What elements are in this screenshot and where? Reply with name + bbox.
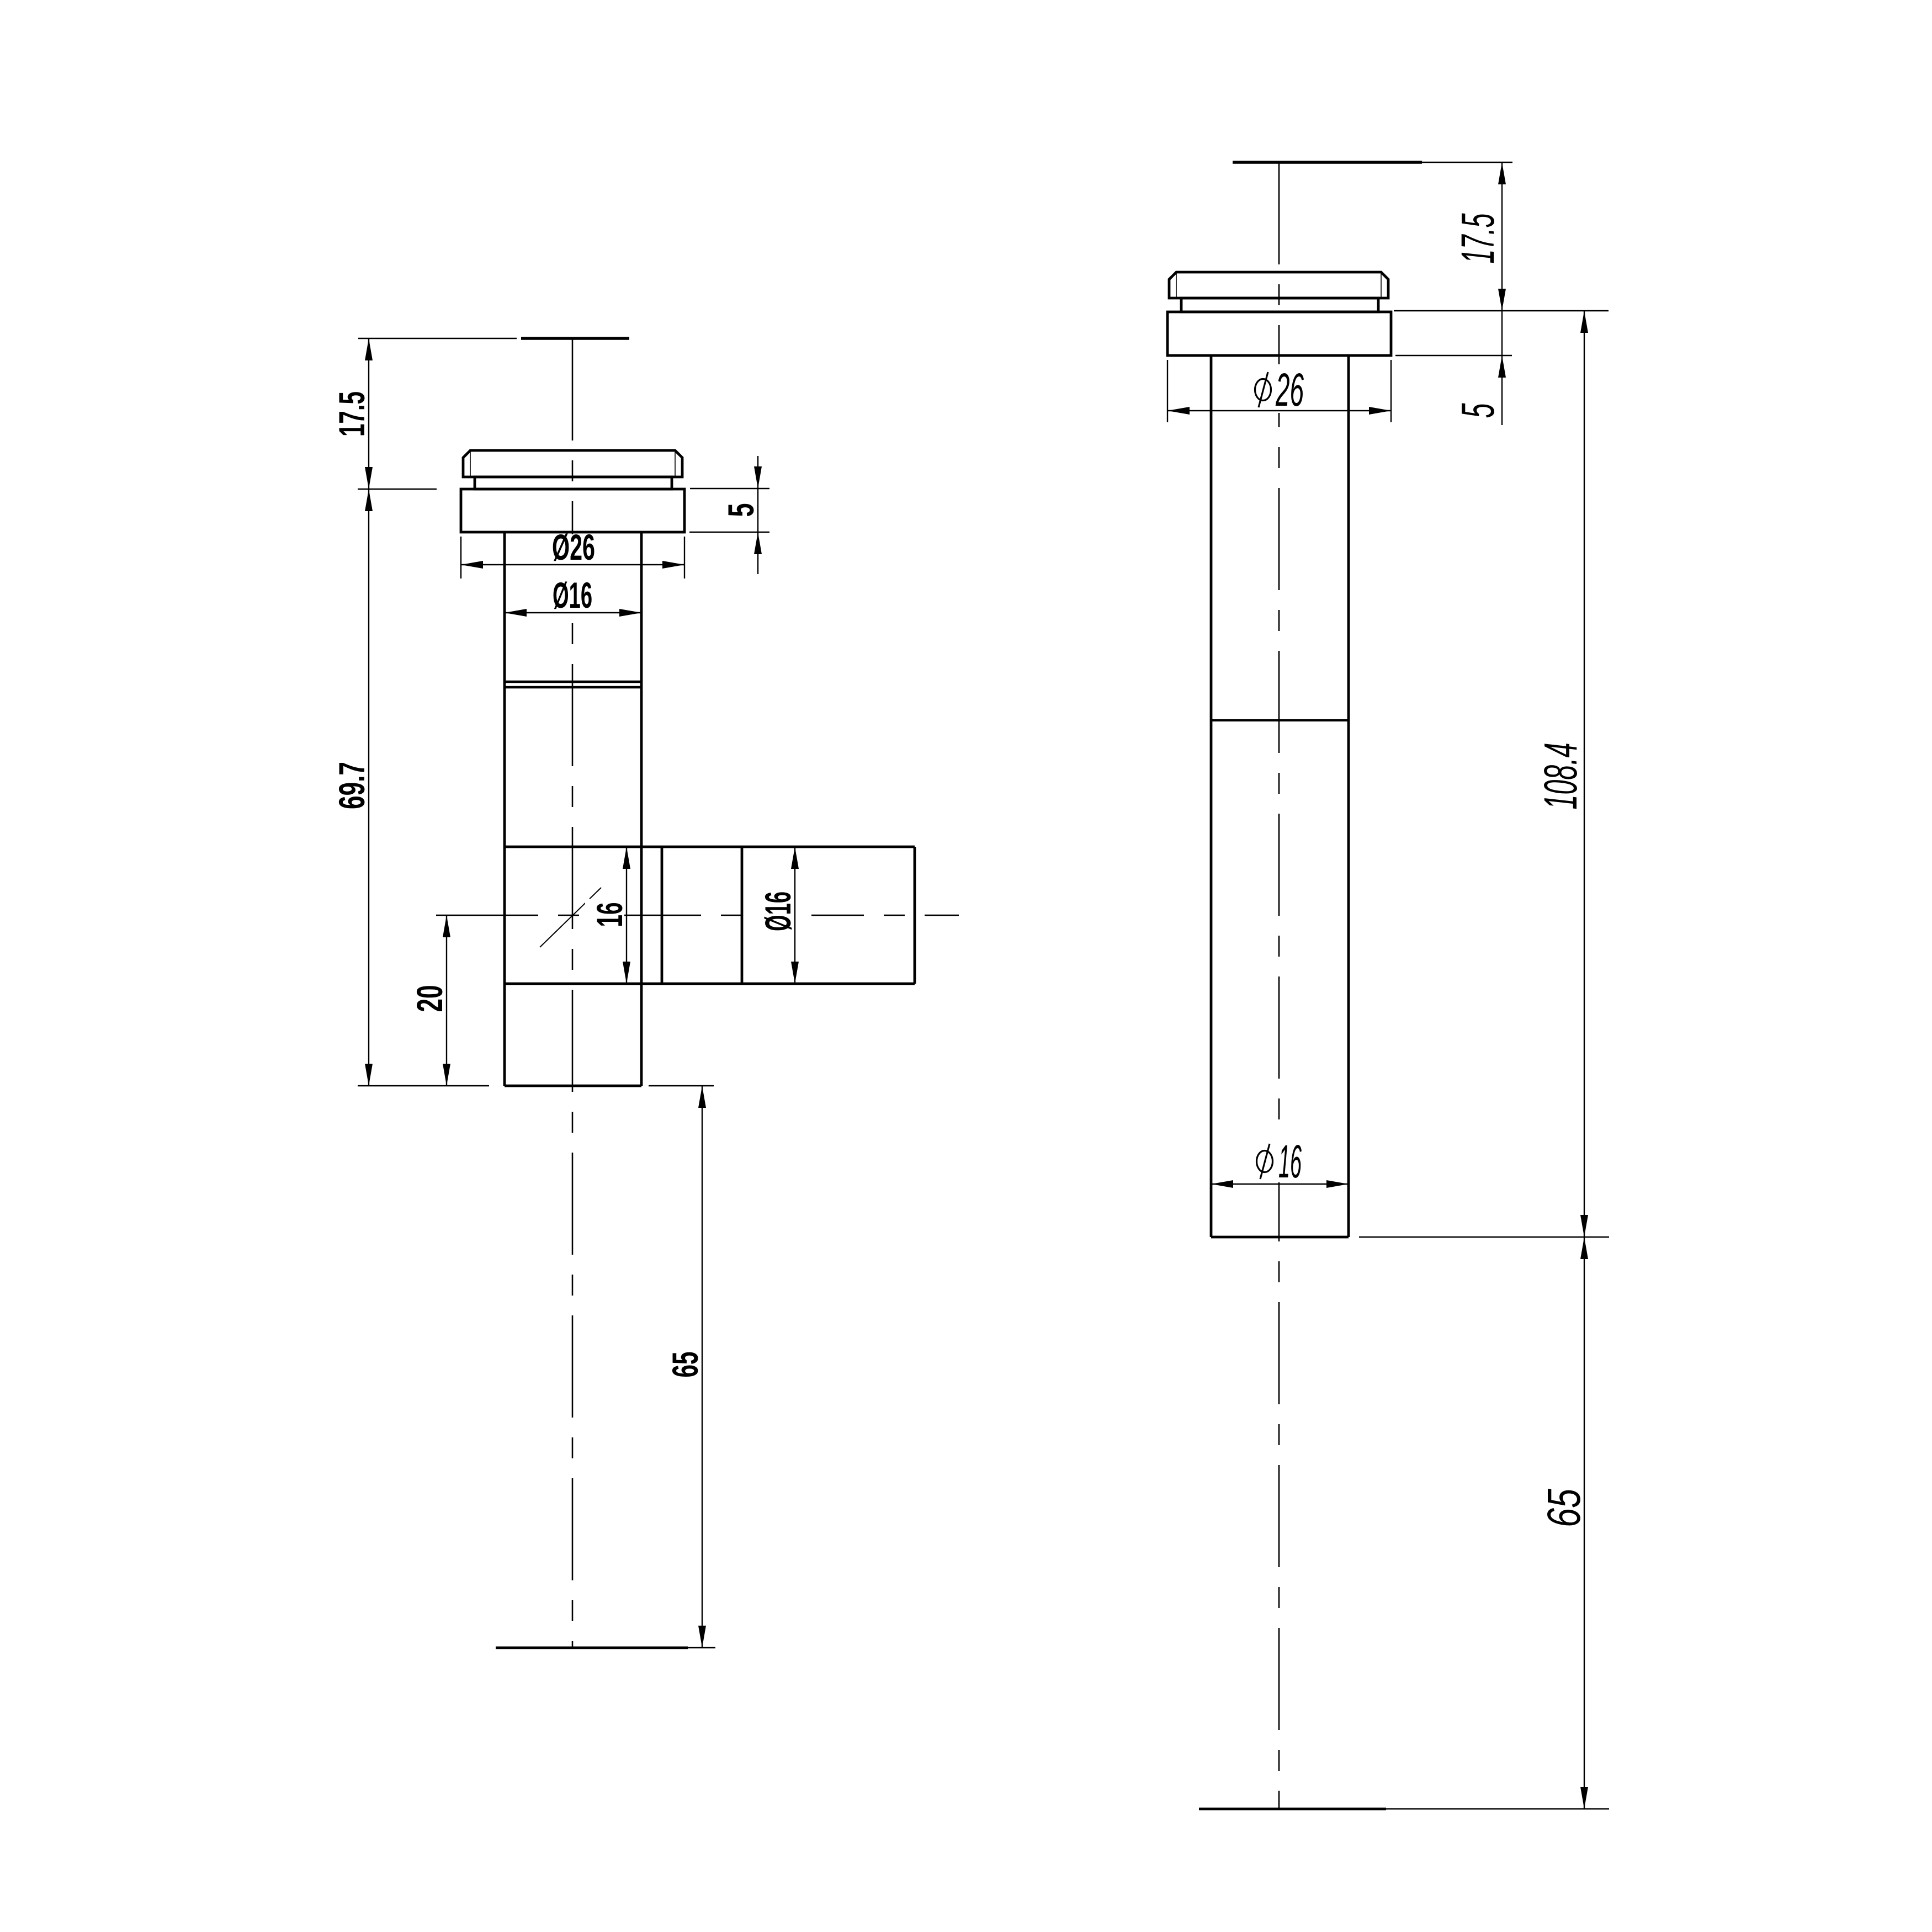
svg-text:Ø16: Ø16 <box>553 575 592 615</box>
svg-text:108.4: 108.4 <box>1535 743 1586 810</box>
svg-text:16: 16 <box>1278 1135 1302 1187</box>
svg-text:Ø26: Ø26 <box>552 527 595 567</box>
svg-text:69.7: 69.7 <box>331 762 372 809</box>
svg-text:Ø16: Ø16 <box>757 891 798 931</box>
svg-text:26: 26 <box>1275 364 1304 416</box>
svg-text:5: 5 <box>1452 403 1504 418</box>
svg-text:65: 65 <box>1538 1489 1590 1527</box>
svg-text:17.5: 17.5 <box>331 391 372 437</box>
svg-text:17.5: 17.5 <box>1452 213 1504 263</box>
svg-text:5: 5 <box>720 503 761 517</box>
svg-text:16: 16 <box>589 903 630 927</box>
svg-text:65: 65 <box>665 1352 705 1378</box>
svg-text:20: 20 <box>409 985 450 1012</box>
